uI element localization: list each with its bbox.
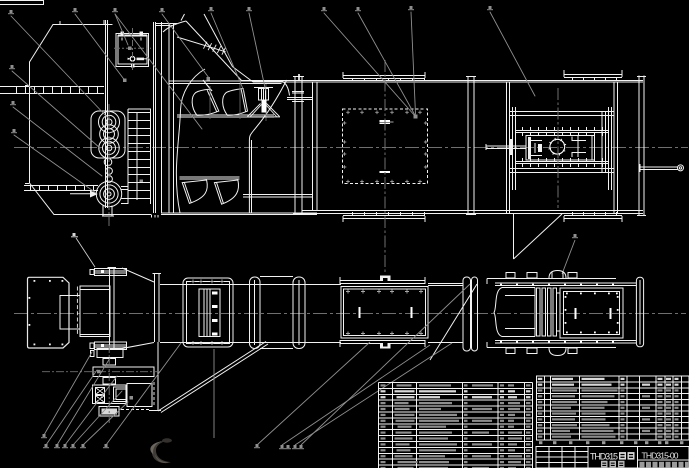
svg-text:THD315: THD315 xyxy=(590,451,618,461)
svg-text:THD315-00: THD315-00 xyxy=(642,450,679,460)
